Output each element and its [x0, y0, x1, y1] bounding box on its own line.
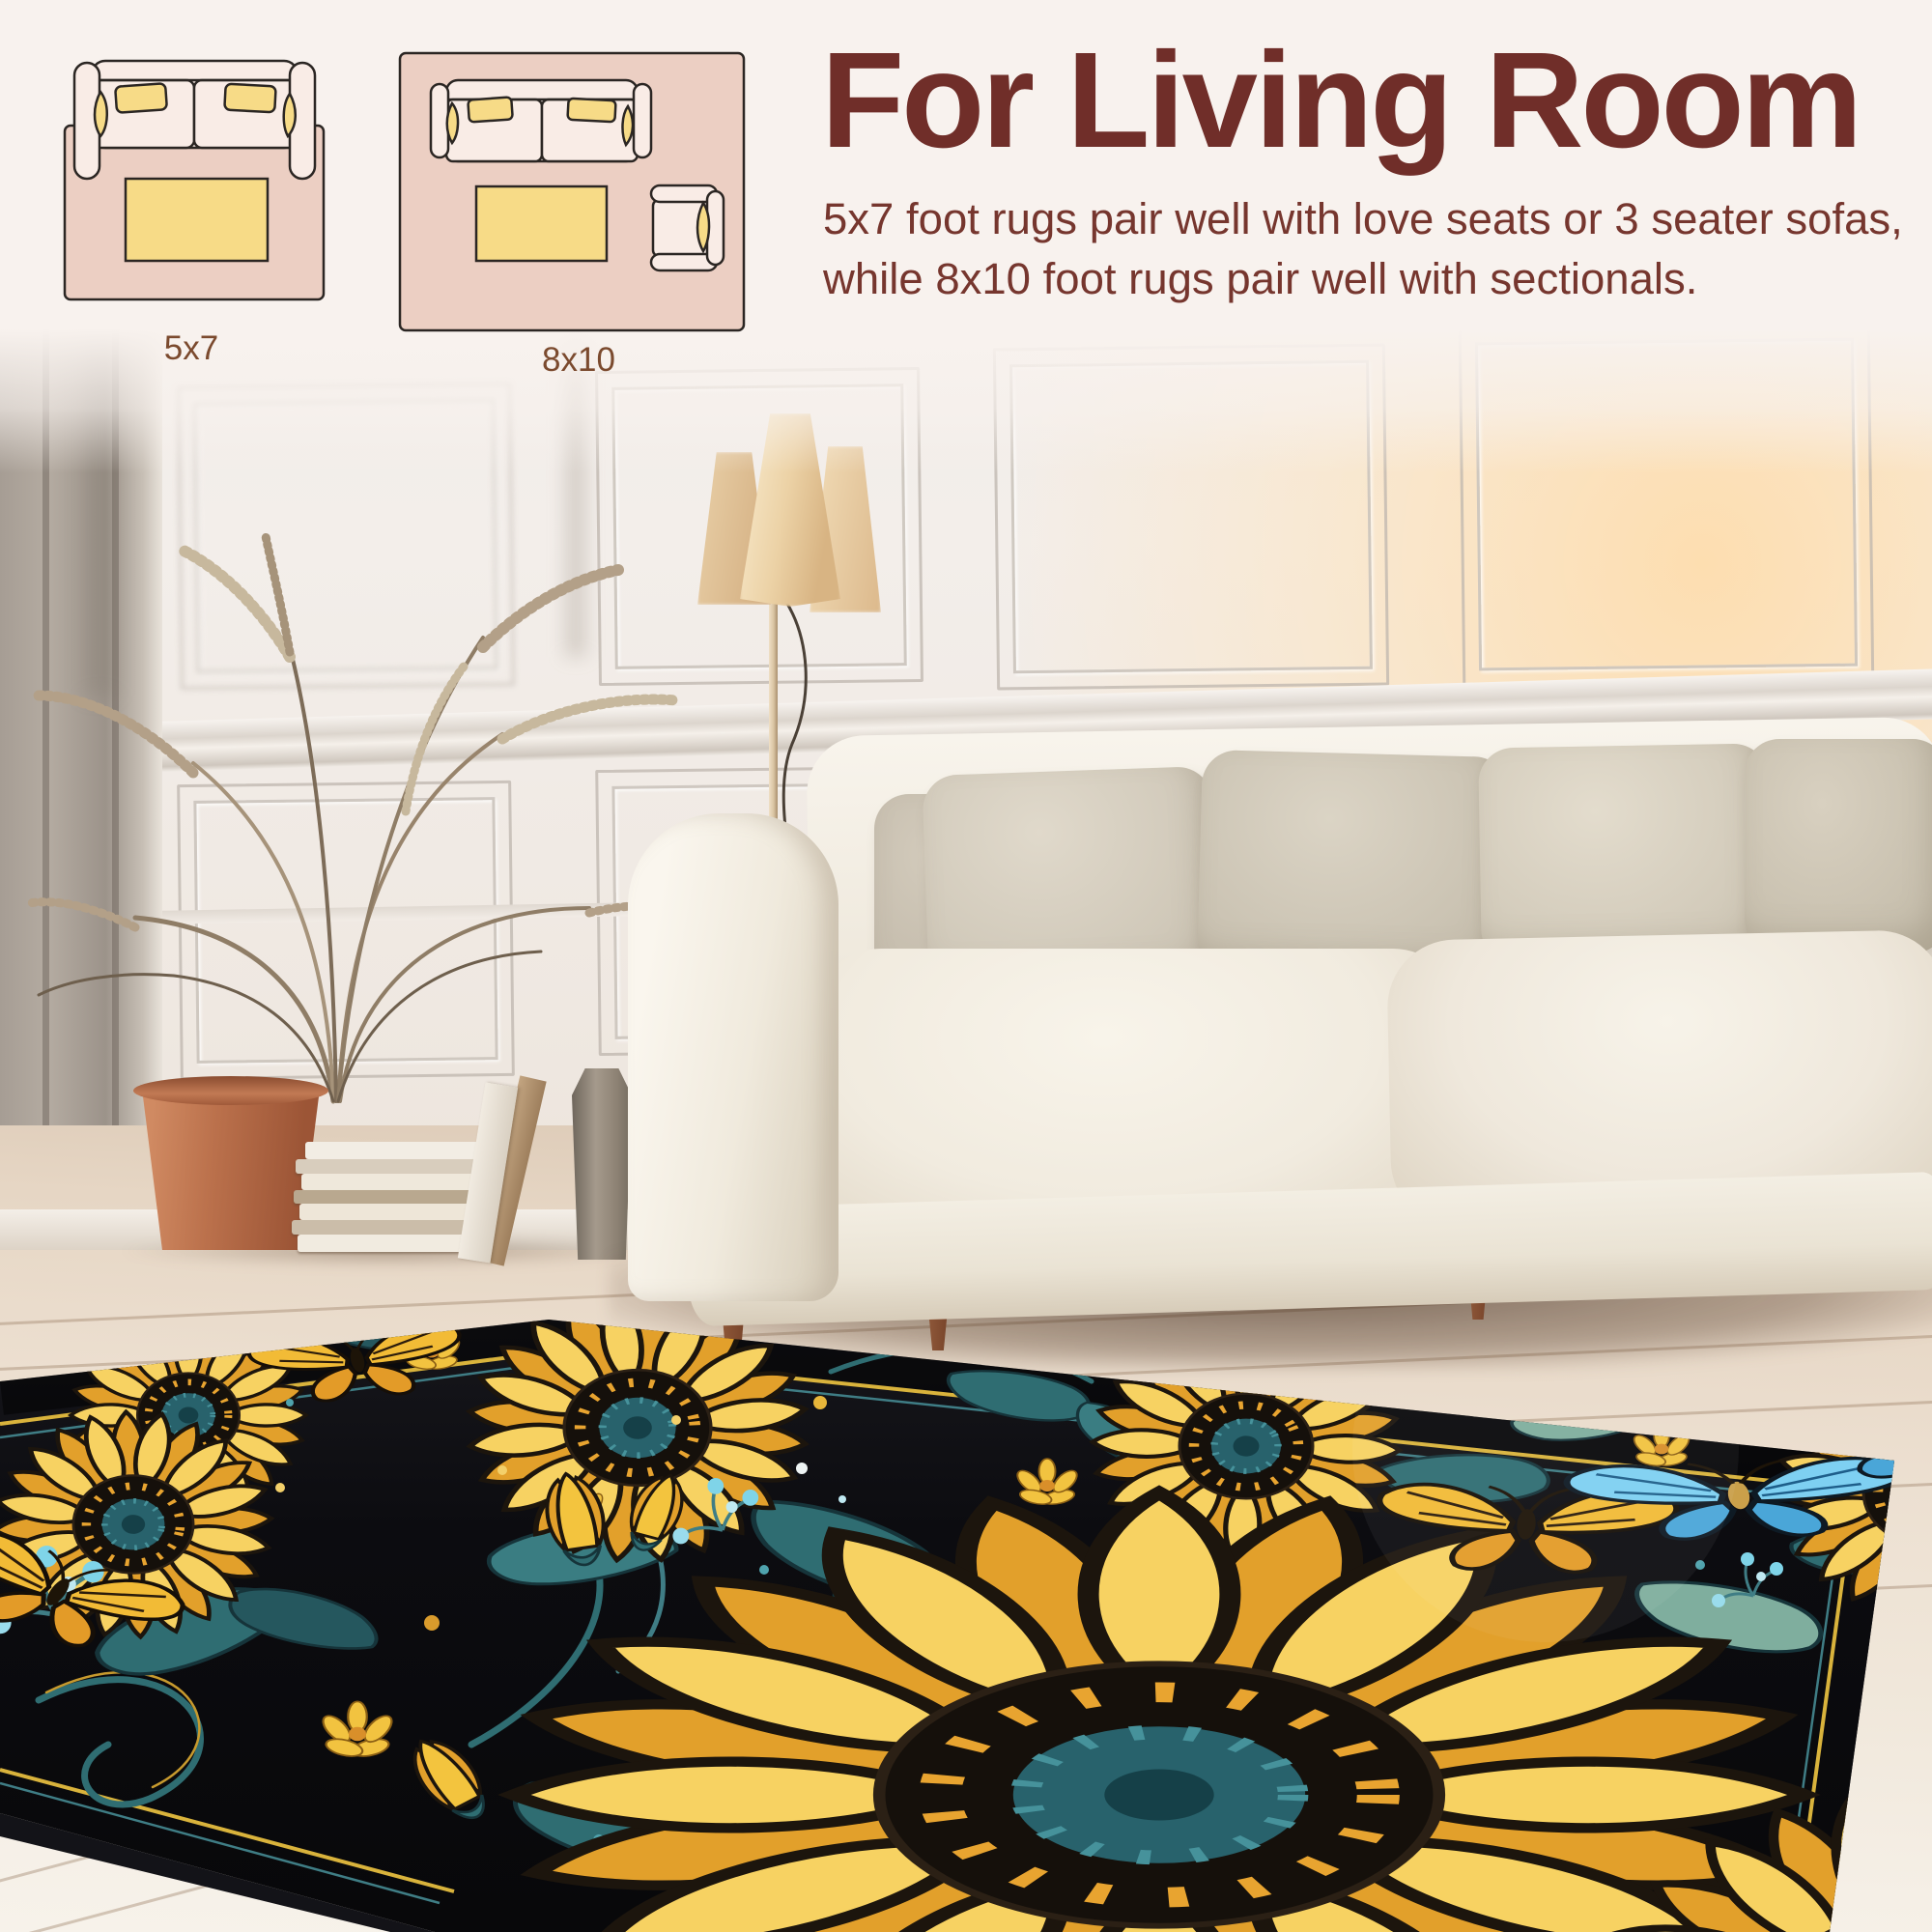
rug-size-diagram-8x10: 8x10 — [384, 39, 790, 386]
dried-palm-plant — [0, 522, 696, 1121]
book — [301, 1174, 495, 1190]
page-description: 5x7 foot rugs pair well with love seats … — [823, 189, 1932, 309]
throw-pillow — [1478, 743, 1772, 964]
book — [305, 1142, 495, 1159]
terracotta-pot-rim — [133, 1076, 328, 1105]
coffee-table-icon — [126, 179, 268, 261]
rug-size-diagram-5x7: 5x7 — [37, 39, 327, 377]
armchair-top-view-icon — [651, 185, 724, 270]
throw-pillow — [1745, 739, 1932, 953]
diagram-label-5x7: 5x7 — [164, 329, 218, 367]
sofa-top-view-icon — [431, 80, 651, 161]
sofa-armrest — [628, 813, 838, 1301]
book — [296, 1159, 498, 1174]
diagram-label-8x10: 8x10 — [542, 341, 615, 379]
coffee-table-icon — [476, 186, 607, 261]
rug-sheen — [1352, 1256, 1739, 1642]
page-title: For Living Room — [821, 21, 1922, 179]
sunflower-rug — [0, 1246, 1932, 1932]
